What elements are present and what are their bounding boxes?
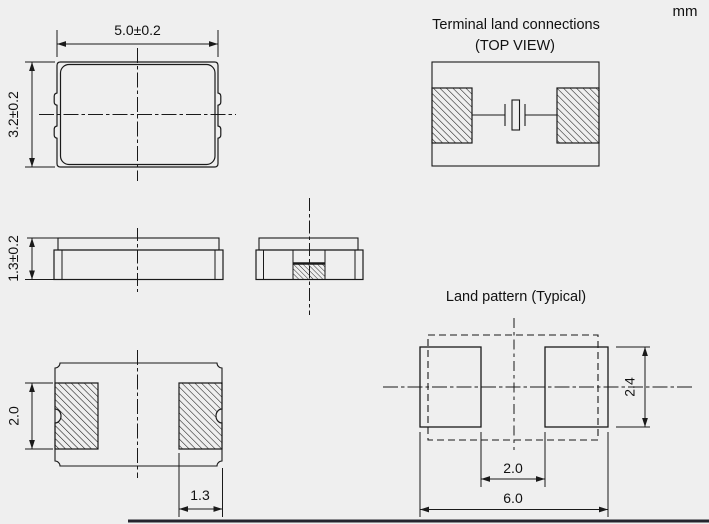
front-view-lid [58,238,219,250]
bottom-view-pad-right [179,383,222,449]
terminal-view-pad-left [432,88,472,143]
drawing-page: mm 5.0±0.2 3.2±0.2 [0,0,709,524]
end-view-lid [259,238,358,250]
bottom-view-pad-height-dim-label: 2.0 [6,406,22,426]
terminal-view-title-line2: (TOP VIEW) [475,38,555,54]
window-bottom-edge [128,520,709,523]
terminal-view-title-line1: Terminal land connections [432,17,600,33]
bottom-view-pad-width-dim-label: 1.3 [190,487,210,503]
package-top-view: 5.0±0.2 3.2±0.2 [5,22,236,181]
land-pattern-pad-height-dim-label: 2.4 [622,377,638,397]
unit-label: mm [673,3,698,20]
front-view-height-dimension [25,238,58,280]
land-pattern-view: 2.4 2.0 6.0 [383,318,692,517]
bottom-view-pad-left [55,383,98,449]
land-pattern-overall-width-dim-label: 6.0 [503,490,523,506]
top-view-width-dim-label: 5.0±0.2 [114,22,161,38]
top-view-height-dim-label: 3.2±0.2 [5,91,21,138]
crystal-symbol [472,100,557,130]
crystal-element [512,100,520,130]
front-view-height-dim-label: 1.3±0.2 [5,235,21,282]
terminal-land-connections-view [432,62,599,166]
package-end-view [256,198,363,315]
terminal-view-pad-right [557,88,599,143]
bottom-view-pad-width-dimension [179,453,223,517]
package-front-view: 1.3±0.2 [5,228,223,292]
bottom-view-pad-height-dimension [25,383,53,449]
land-pattern-gap-dim-label: 2.0 [503,460,523,476]
land-pattern-title: Land pattern (Typical) [446,289,586,305]
package-bottom-view: 2.0 1.3 [6,350,223,517]
technical-drawing: mm 5.0±0.2 3.2±0.2 [0,0,709,524]
front-view-body [54,250,223,280]
